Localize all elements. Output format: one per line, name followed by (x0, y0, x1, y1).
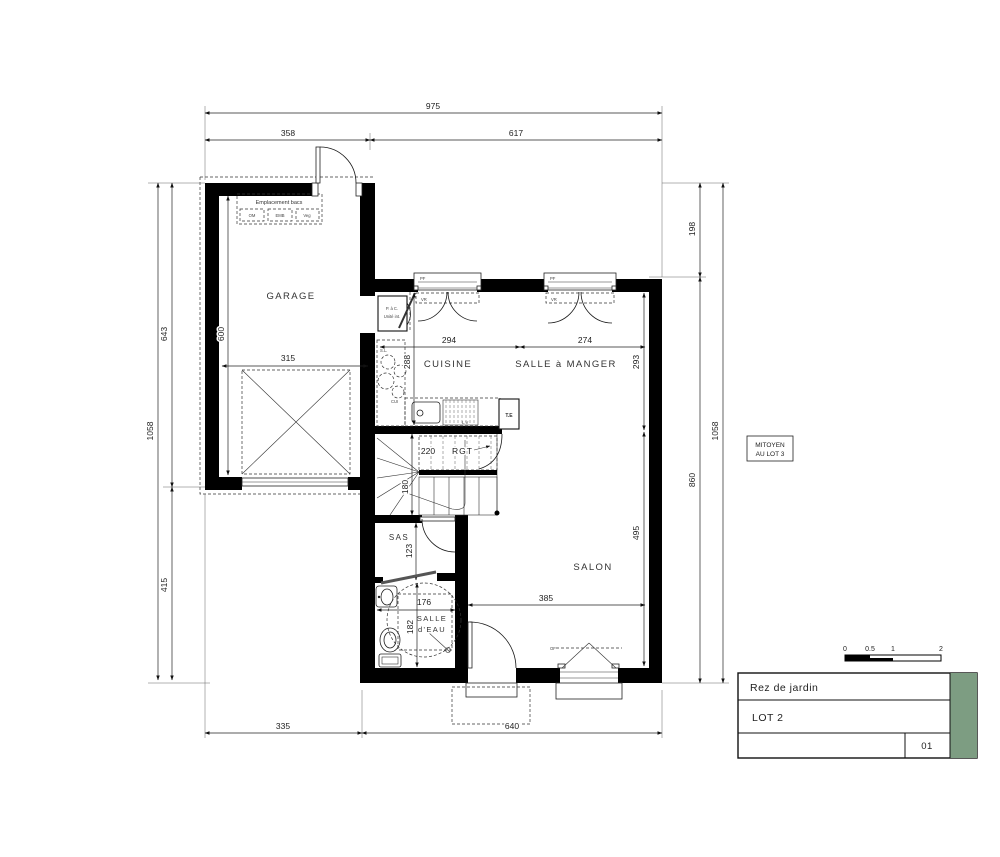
dim-bathroom-height: 182 (405, 620, 415, 634)
bathroom-label-line2: d'EAU (418, 625, 446, 634)
dishwasher: L.V (443, 400, 478, 425)
floor-name: Rez de jardin (750, 682, 818, 694)
dim-sas-height: 123 (404, 544, 414, 558)
title-block-accent (950, 673, 977, 758)
entry-door (466, 622, 517, 697)
bin-om-label: OM (249, 213, 256, 218)
dim-garage-width: 358 (281, 128, 295, 138)
of-label: OF (550, 646, 556, 651)
dim-right-bottom: 860 (687, 473, 697, 487)
dim-total-width: 975 (426, 101, 440, 111)
dim-garage-int-width: 315 (281, 353, 295, 363)
bathroom-label-line1: SALLE (417, 614, 447, 623)
bin-veg-label: Veg (303, 213, 311, 218)
bins-label: Emplacement bacs (256, 200, 303, 206)
electrical-panel-label: T.E (505, 413, 513, 419)
dim-bathroom-width: 176 (417, 597, 431, 607)
scale-0: 0 (843, 646, 847, 653)
garage-window (242, 478, 348, 486)
dim-stair-width: 220 (421, 446, 435, 456)
front-door (312, 147, 362, 196)
dim-below-garage: 415 (159, 578, 169, 592)
kitchen-sink (412, 402, 440, 423)
party-wall-line1: MITOYEN (755, 442, 785, 449)
title-block: Rez de jardin LOT 2 01 (738, 673, 977, 758)
floor-plan-sheet: Emplacement bacs OM EMB Veg GARAGE (0, 0, 1000, 857)
dim-salon-width: 385 (539, 593, 553, 603)
kitchen-area: P. à C. Unité int. S.L. CUI L.V (377, 292, 617, 429)
scale-2: 2 (939, 646, 943, 653)
party-wall-note: MITOYEN AU LOT 3 (747, 436, 793, 461)
dim-garage-int-height: 600 (216, 327, 226, 341)
electrical-panel: T.E (499, 399, 519, 429)
dim-sam-height: 293 (631, 355, 641, 369)
dim-stair-height: 180 (400, 480, 410, 494)
dim-salon-height: 495 (631, 526, 641, 540)
bin-emb-label: EMB (275, 213, 284, 218)
pf1-label: PF (420, 276, 426, 281)
scale-05: 0.5 (865, 646, 875, 653)
heat-pump-label: P. à C. (386, 306, 398, 311)
window-salle-a-manger: PF VR (544, 273, 616, 323)
cuisine-label: CUISINE (424, 359, 472, 370)
floor-plan: Emplacement bacs OM EMB Veg GARAGE (0, 0, 1000, 857)
parking-reserve (242, 370, 350, 474)
heat-pump-sublabel: Unité int. (384, 314, 401, 319)
window-cuisine: PF VR (414, 273, 481, 321)
dim-living-width: 617 (509, 128, 523, 138)
bins-area: Emplacement bacs OM EMB Veg (237, 194, 322, 224)
vr1-label: VR (421, 297, 427, 302)
salle-a-manger-label: SALLE à MANGER (515, 359, 616, 370)
kitchen-counter: S.L. CUI L.V (377, 340, 500, 426)
salon-area: SALON OF (452, 562, 622, 724)
dim-bottom-left: 335 (276, 721, 290, 731)
dim-total-height-right: 1058 (710, 421, 720, 440)
lot-name: LOT 2 (752, 712, 784, 724)
cui-label: CUI (391, 399, 398, 404)
scale-1: 1 (891, 646, 895, 653)
salon-window: OF (550, 643, 622, 699)
dim-garage-height: 643 (159, 327, 169, 341)
dim-cuisine-height: 288 (402, 355, 412, 369)
dim-sam-width: 274 (578, 335, 592, 345)
dim-bottom-right: 640 (505, 721, 519, 731)
dim-total-height-left: 1058 (145, 421, 155, 440)
sl-label: S.L. (380, 348, 387, 353)
dim-cuisine-width: 294 (442, 335, 456, 345)
garage-label: GARAGE (266, 291, 315, 302)
scale-bar: 0 0.5 1 2 (843, 646, 943, 661)
garage-area: Emplacement bacs OM EMB Veg GARAGE (237, 147, 362, 486)
walls (205, 183, 662, 683)
washbasin (376, 586, 397, 607)
party-wall-line2: AU LOT 3 (756, 451, 785, 458)
sheet-number: 01 (921, 741, 933, 752)
dim-right-top: 198 (687, 222, 697, 236)
bathroom-area: SALLE d'EAU 176 182 (376, 583, 461, 667)
pf2-label: PF (550, 276, 556, 281)
under-stair-storage-label: RGT (452, 446, 473, 456)
salon-label: SALON (573, 562, 612, 573)
staircase: 220 RGT 180 (377, 434, 502, 516)
sas-bathroom-door (381, 572, 436, 583)
lv-label: L.V (462, 420, 468, 425)
sas-label: SAS (389, 533, 409, 542)
vr2-label: VR (551, 297, 557, 302)
